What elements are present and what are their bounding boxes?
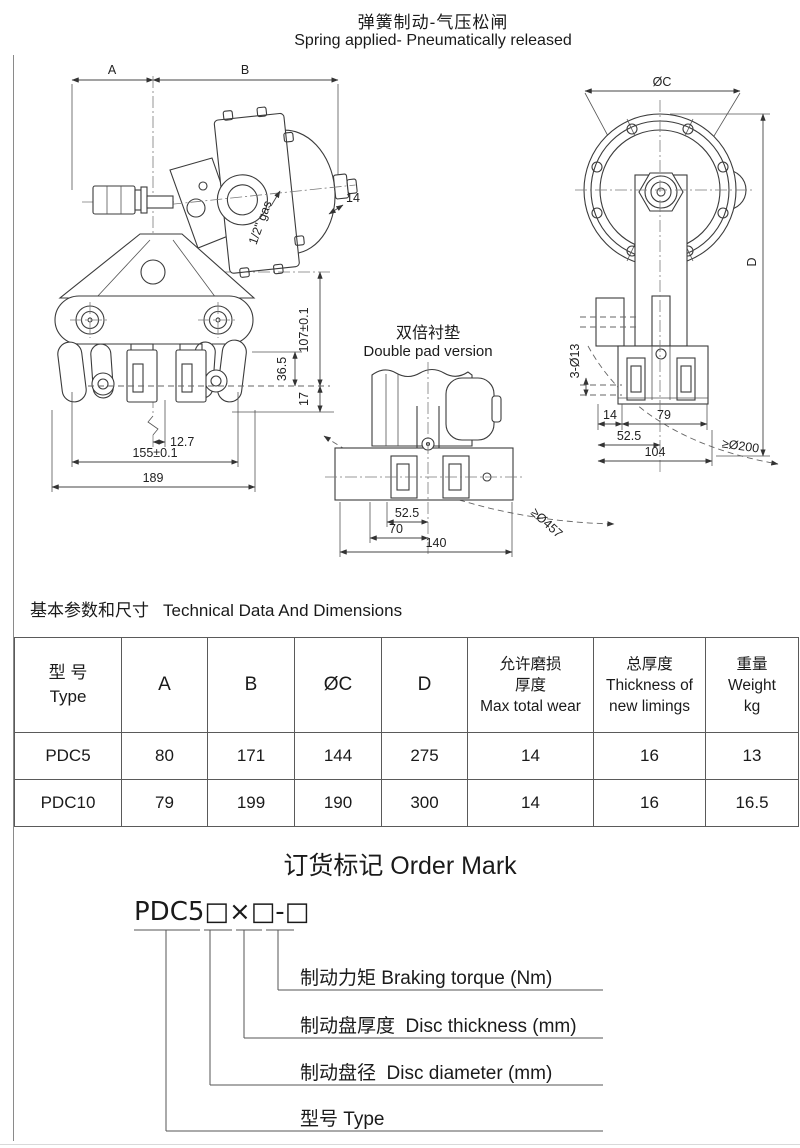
catalog-page: 弹簧制动-气压松闸 Spring applied- Pneumatically … [0,0,800,1148]
section-heading-zh: 基本参数和尺寸 [30,601,149,620]
dim-label-fv-52-5: 52.5 [617,429,641,443]
order-label-disc-thickness: 制动盘厚度 Disc thickness (mm) [300,1011,577,1038]
section-heading-en: Technical Data And Dimensions [163,601,402,620]
dim-label-A: A [108,63,117,77]
cell-c: 190 [295,780,382,827]
side-view-drawing: A B [52,63,365,492]
header-weight-unit: kg [706,696,798,717]
header-wear-en: Max total wear [468,696,593,717]
dim-label-fv-14: 14 [603,408,617,422]
header-type-zh: 型 号 [15,661,121,685]
table-header-a: A [122,638,208,733]
header-wear-zh1: 允许磨损 [468,654,593,675]
dim-label-dp-52-5: 52.5 [395,506,419,520]
dim-label-D: D [745,257,759,266]
table-header-weight: 重量 Weight kg [706,638,799,733]
table-row: PDC5 80 171 144 275 14 16 13 [15,733,799,780]
cell-d: 275 [382,733,468,780]
header-weight-zh: 重量 [706,654,798,675]
dim-label-dp-140: 140 [426,536,447,550]
technical-data-table: 型 号 Type A B ØC D 允许磨损 厚度 Max total wear… [14,637,799,827]
table-header-new-linings: 总厚度 Thickness of new limings [594,638,706,733]
header-weight-en: Weight [706,675,798,696]
dim-label-155: 155±0.1 [132,446,177,460]
cell-new-lining: 16 [594,733,706,780]
dim-label-disc-200: ≥Ø200 [721,437,760,456]
dim-label-B: B [241,63,249,77]
dim-label-107: 107±0.1 [297,307,311,352]
header-new-en1: Thickness of [594,675,705,696]
cell-c: 144 [295,733,382,780]
dim-label-holes: 3-Ø13 [568,344,582,379]
table-header-c: ØC [295,638,382,733]
header-wear-zh2: 厚度 [468,675,593,696]
cell-type: PDC10 [15,780,122,827]
header-type-en: Type [15,685,121,709]
double-pad-title-en: Double pad version [363,343,492,360]
dim-label-C: ØC [653,75,672,89]
front-view-drawing: ØC [568,75,778,472]
dim-label-17: 17 [297,392,311,406]
table-header-type: 型 号 Type [15,638,122,733]
cell-type: PDC5 [15,733,122,780]
order-label-disc-diameter: 制动盘径 Disc diameter (mm) [300,1058,552,1085]
cell-weight: 16.5 [706,780,799,827]
cell-new-lining: 16 [594,780,706,827]
dim-label-36-5: 36.5 [275,357,289,381]
order-label-braking-torque: 制动力矩 Braking torque (Nm) [300,963,552,990]
cell-a: 80 [122,733,208,780]
order-label-type: 型号 Type [300,1104,384,1131]
header-new-en2: new limings [594,696,705,717]
technical-drawings: A B [0,0,800,560]
dim-label-fv-104: 104 [645,445,666,459]
cell-b: 171 [208,733,295,780]
section-heading: 基本参数和尺寸Technical Data And Dimensions [30,596,402,621]
order-mark-heading: 订货标记 Order Mark [0,846,800,882]
dim-label-dp-70: 70 [389,522,403,536]
cell-wear: 14 [468,733,594,780]
cell-d: 300 [382,780,468,827]
table-header-wear: 允许磨损 厚度 Max total wear [468,638,594,733]
table-row: PDC10 79 199 190 300 14 16 16.5 [15,780,799,827]
double-pad-title-zh: 双倍衬垫 [396,324,460,342]
table-header-row: 型 号 Type A B ØC D 允许磨损 厚度 Max total wear… [15,638,799,733]
dim-label-fv-79: 79 [657,408,671,422]
table-header-d: D [382,638,468,733]
dim-label-disc-457: ≥Ø457 [528,505,565,540]
dim-label-189: 189 [143,471,164,485]
dim-label-14: 14 [346,191,360,205]
header-new-zh: 总厚度 [594,654,705,675]
cell-weight: 13 [706,733,799,780]
table-header-b: B [208,638,295,733]
cell-a: 79 [122,780,208,827]
cell-b: 199 [208,780,295,827]
cell-wear: 14 [468,780,594,827]
